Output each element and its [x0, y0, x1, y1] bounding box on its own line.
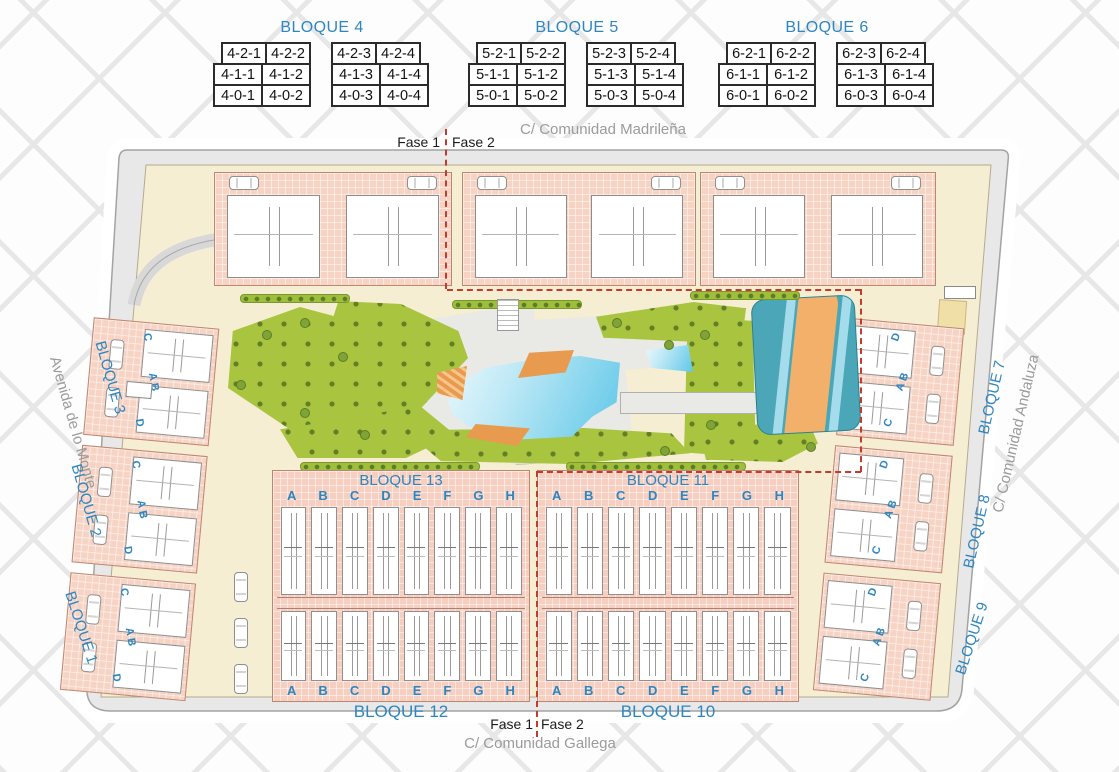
tree [236, 380, 246, 390]
unit-cell[interactable]: 5-0-2 [516, 84, 566, 107]
unit-cell[interactable]: 6-1-1 [718, 63, 768, 86]
table-gap [309, 42, 333, 65]
townhouse-unit [671, 611, 697, 681]
unit-letter[interactable]: E [413, 683, 422, 698]
townhouse-row [278, 507, 524, 595]
fase2-label-top: Fase 2 [452, 134, 495, 150]
driveway-cars [901, 463, 944, 562]
unit-letter[interactable]: A [287, 488, 296, 503]
building-bloque-4[interactable] [214, 172, 452, 286]
unit-letter[interactable]: A [552, 488, 561, 503]
table-row: 4-1-14-1-24-1-34-1-4 [213, 63, 431, 86]
unit-cell[interactable]: 4-0-2 [261, 84, 311, 107]
phase-boundary-line [536, 471, 538, 737]
unit-letter[interactable]: A [552, 683, 561, 698]
table-row: 6-2-16-2-26-2-36-2-4 [726, 42, 936, 65]
parked-car [928, 345, 945, 376]
unit-letter[interactable]: C [616, 683, 625, 698]
unit-letter[interactable]: F [711, 488, 719, 503]
unit-letter[interactable]: E [413, 488, 422, 503]
townhouse-unit [373, 611, 399, 681]
unit-letter[interactable]: G [742, 683, 752, 698]
bloque-13-label[interactable]: BLOQUE 13 [273, 472, 529, 489]
unit-cell[interactable]: 6-2-2 [770, 42, 816, 65]
parked-car [651, 176, 681, 190]
unit-letter[interactable]: C [616, 488, 625, 503]
hedge [240, 294, 350, 303]
parked-car [905, 600, 922, 631]
floor-plan [831, 195, 923, 278]
townhouse-unit [404, 611, 430, 681]
unit-cell[interactable]: 4-0-1 [213, 84, 263, 107]
unit-letter[interactable]: A [287, 683, 296, 698]
unit-cell[interactable]: 5-2-4 [630, 42, 676, 65]
table-body: 6-2-16-2-26-2-36-2-46-1-16-1-26-1-36-1-4… [718, 42, 936, 107]
unit-letter-row: ABCDEFGH [287, 683, 515, 698]
unit-cell[interactable]: 5-1-2 [516, 63, 566, 86]
unit-letter[interactable]: D [648, 488, 657, 503]
table-row: 4-2-14-2-24-2-34-2-4 [221, 42, 431, 65]
tree [262, 330, 272, 340]
unit-cell[interactable]: 4-1-1 [213, 63, 263, 86]
unit-cell[interactable]: 5-0-4 [634, 84, 684, 107]
unit-letter[interactable]: H [506, 683, 515, 698]
unit-letter[interactable]: E [680, 683, 689, 698]
townhouse-unit [639, 507, 665, 595]
fase1-label-bottom: Fase 1 [485, 716, 533, 732]
parked-car [477, 176, 507, 190]
phase-boundary-line [860, 289, 862, 472]
utility-box [125, 381, 152, 399]
table-gap [564, 63, 588, 86]
floor-plan [824, 580, 893, 634]
unit-cell[interactable]: 6-2-3 [836, 42, 882, 65]
table-row: 5-1-15-1-25-1-35-1-4 [468, 63, 686, 86]
table-gap [814, 63, 838, 86]
unit-letter[interactable]: F [443, 683, 451, 698]
building-bloque-8[interactable]: D A B C [824, 445, 952, 573]
townhouse-unit [546, 507, 572, 595]
townhouse-unit [577, 507, 603, 595]
parked-car [901, 648, 918, 679]
parked-car [234, 572, 248, 602]
table-gap [309, 84, 333, 107]
unit-cell[interactable]: 5-0-3 [586, 84, 636, 107]
block-divider [542, 597, 794, 609]
tree [660, 446, 670, 456]
townhouse-unit [733, 507, 759, 595]
tree [338, 352, 348, 362]
townhouse-unit [404, 507, 430, 595]
parked-car [913, 521, 930, 552]
parked-car [234, 618, 248, 648]
table-gap [564, 84, 588, 107]
parked-car [229, 176, 259, 190]
unit-letter-row: ABCDEFGH [552, 683, 784, 698]
table-title: BLOQUE 4 [280, 19, 363, 37]
floor-plan [591, 195, 683, 278]
unit-cell[interactable]: 4-1-4 [379, 63, 429, 86]
splash-park[interactable] [751, 294, 862, 435]
table-gap [814, 42, 838, 65]
table-row: 6-1-16-1-26-1-36-1-4 [718, 63, 936, 86]
townhouse-row [543, 611, 793, 681]
unit-cell[interactable]: 4-0-3 [331, 84, 381, 107]
unit-letter[interactable]: D [648, 683, 657, 698]
unit-letter[interactable]: D [381, 488, 390, 503]
table-gap [309, 63, 333, 86]
unit-cell[interactable]: 6-0-4 [884, 84, 934, 107]
unit-cell[interactable]: 5-1-4 [634, 63, 684, 86]
floor-plan [475, 195, 567, 278]
unit-letter[interactable]: G [473, 683, 483, 698]
townhouse-unit [702, 611, 728, 681]
hedge [690, 291, 800, 300]
parking-strip [715, 176, 921, 190]
table-body: 4-2-14-2-24-2-34-2-44-1-14-1-24-1-34-1-4… [213, 42, 431, 107]
visitor-parking [234, 572, 248, 694]
table-title: BLOQUE 5 [535, 19, 618, 37]
parked-car [917, 473, 934, 504]
unit-letter[interactable]: H [775, 488, 784, 503]
unit-cell[interactable]: 5-0-1 [468, 84, 518, 107]
tree [664, 340, 674, 350]
unit-cell[interactable]: 5-1-3 [586, 63, 636, 86]
unit-letter[interactable]: C [350, 488, 359, 503]
townhouse-unit [311, 507, 337, 595]
unit-cell[interactable]: 5-1-1 [468, 63, 518, 86]
utility-box [944, 286, 976, 299]
townhouse-unit [608, 611, 634, 681]
parked-car [715, 176, 745, 190]
unit-letter: A B [134, 499, 149, 519]
unit-cell[interactable]: 6-1-2 [766, 63, 816, 86]
table-row: 4-0-14-0-24-0-34-0-4 [213, 84, 431, 107]
unit-letter[interactable]: F [711, 683, 719, 698]
street-label-top: C/ Comunidad Madrileña [520, 121, 686, 138]
unit-cell[interactable]: 6-2-4 [880, 42, 926, 65]
floor-plan [123, 512, 196, 566]
table-row: 5-0-15-0-25-0-35-0-4 [468, 84, 686, 107]
townhouse-unit [764, 611, 790, 681]
townhouse-unit [639, 611, 665, 681]
townhouse-unit [342, 611, 368, 681]
tree [360, 430, 370, 440]
floor-plans [713, 195, 923, 278]
unit-cell[interactable]: 4-2-1 [221, 42, 267, 65]
phase-boundary-line [537, 471, 861, 473]
unit-letter-row: ABCDEFGH [552, 488, 784, 503]
unit-cell[interactable]: 6-0-1 [718, 84, 768, 107]
driveway-cars [890, 590, 933, 689]
floor-plan [112, 640, 185, 694]
unit-letter[interactable]: C [350, 683, 359, 698]
tree [706, 420, 716, 430]
unit-cell[interactable]: 5-2-2 [520, 42, 566, 65]
townhouse-unit [373, 507, 399, 595]
unit-cell[interactable]: 4-2-2 [265, 42, 311, 65]
bloque-11-label[interactable]: BLOQUE 11 [538, 472, 798, 489]
floor-plan [227, 195, 320, 278]
driveway-cars [913, 335, 956, 434]
unit-letter[interactable]: E [680, 488, 689, 503]
unit-cell[interactable]: 4-0-4 [379, 84, 429, 107]
floor-plans [475, 195, 683, 278]
unit-letter[interactable]: B [318, 683, 327, 698]
tree [300, 408, 310, 418]
unit-cell[interactable]: 4-1-2 [261, 63, 311, 86]
table-gap [564, 42, 588, 65]
townhouse-unit [311, 611, 337, 681]
townhouse-unit [671, 507, 697, 595]
townhouse-unit [577, 611, 603, 681]
townhouse-unit [608, 507, 634, 595]
site-plan: BLOQUE 4 4-2-14-2-24-2-34-2-44-1-14-1-24… [0, 0, 1119, 772]
building-bloque-6[interactable] [700, 172, 936, 286]
townhouse-unit [465, 507, 491, 595]
table-title: BLOQUE 6 [785, 19, 868, 37]
table-bloque-6: BLOQUE 6 6-2-16-2-26-2-36-2-46-1-16-1-26… [718, 19, 936, 105]
parking-strip [229, 176, 437, 190]
phase-boundary-line [445, 129, 447, 289]
unit-cell[interactable]: 4-2-4 [375, 42, 421, 65]
townhouse-unit [465, 611, 491, 681]
unit-cell[interactable]: 6-0-2 [766, 84, 816, 107]
townhouse-unit [546, 611, 572, 681]
unit-cell[interactable]: 6-0-3 [836, 84, 886, 107]
block-divider [277, 597, 525, 609]
street-label-bottom: C/ Comunidad Gallega [464, 735, 616, 752]
parked-car [234, 664, 248, 694]
floor-plans [227, 195, 439, 278]
townhouse-row [278, 611, 524, 681]
unit-letter[interactable]: D [381, 683, 390, 698]
bloque-10-label[interactable]: BLOQUE 10 [621, 702, 716, 722]
unit-letter[interactable]: B [584, 488, 593, 503]
unit-cell[interactable]: 6-1-3 [836, 63, 886, 86]
unit-letter[interactable]: G [473, 488, 483, 503]
table-row: 5-2-15-2-25-2-35-2-4 [476, 42, 686, 65]
building-bloque-9[interactable]: D A B C [813, 573, 941, 701]
townhouse-unit [281, 611, 307, 681]
block-13-12[interactable]: BLOQUE 13 ABCDEFGH ABCDEFGH [272, 470, 530, 702]
unit-cell[interactable]: 5-2-3 [586, 42, 632, 65]
unit-cell[interactable]: 4-2-3 [331, 42, 377, 65]
parked-car [407, 176, 437, 190]
table-row: 6-0-16-0-26-0-36-0-4 [718, 84, 936, 107]
table-body: 5-2-15-2-25-2-35-2-45-1-15-1-25-1-35-1-4… [468, 42, 686, 107]
tree [612, 318, 622, 328]
unit-letter[interactable]: H [775, 683, 784, 698]
unit-letter[interactable]: G [742, 488, 752, 503]
parking-strip [477, 176, 681, 190]
floor-plan [713, 195, 805, 278]
bloque-12-label[interactable]: BLOQUE 12 [354, 702, 449, 722]
parked-car [924, 393, 941, 424]
block-11-10[interactable]: BLOQUE 11 ABCDEFGH ABCDEFGH [537, 470, 799, 702]
unit-cell[interactable]: 4-1-3 [331, 63, 381, 86]
unit-letter[interactable]: B [318, 488, 327, 503]
unit-cell[interactable]: 5-2-1 [476, 42, 522, 65]
walkway [620, 392, 760, 414]
unit-letter-row: ABCDEFGH [287, 488, 515, 503]
townhouse-unit [764, 507, 790, 595]
table-gap [814, 84, 838, 107]
townhouse-unit [496, 611, 522, 681]
unit-letter: A B [122, 627, 137, 647]
unit-cell[interactable]: 6-1-4 [884, 63, 934, 86]
townhouse-unit [702, 507, 728, 595]
building-bloque-5[interactable] [462, 172, 696, 286]
fase2-label-bottom: Fase 2 [541, 716, 584, 732]
unit-letter[interactable]: H [506, 488, 515, 503]
parked-car [891, 176, 921, 190]
table-bloque-4: BLOQUE 4 4-2-14-2-24-2-34-2-44-1-14-1-24… [213, 19, 431, 105]
townhouse-unit [496, 507, 522, 595]
fase1-label-top: Fase 1 [392, 134, 440, 150]
unit-letter[interactable]: B [584, 683, 593, 698]
tree [700, 330, 710, 340]
townhouse-row [543, 507, 793, 595]
unit-letter[interactable]: F [443, 488, 451, 503]
townhouse-unit [281, 507, 307, 595]
pergola-steps [497, 299, 519, 331]
unit-cell[interactable]: 6-2-1 [726, 42, 772, 65]
phase-boundary-line [447, 289, 861, 291]
floor-plan [346, 195, 439, 278]
townhouse-unit [342, 507, 368, 595]
floor-plan [835, 453, 904, 507]
townhouse-unit [434, 507, 460, 595]
townhouse-unit [434, 611, 460, 681]
townhouse-unit [733, 611, 759, 681]
tree [300, 318, 310, 328]
table-bloque-5: BLOQUE 5 5-2-15-2-25-2-35-2-45-1-15-1-25… [468, 19, 686, 105]
tree [806, 442, 816, 452]
